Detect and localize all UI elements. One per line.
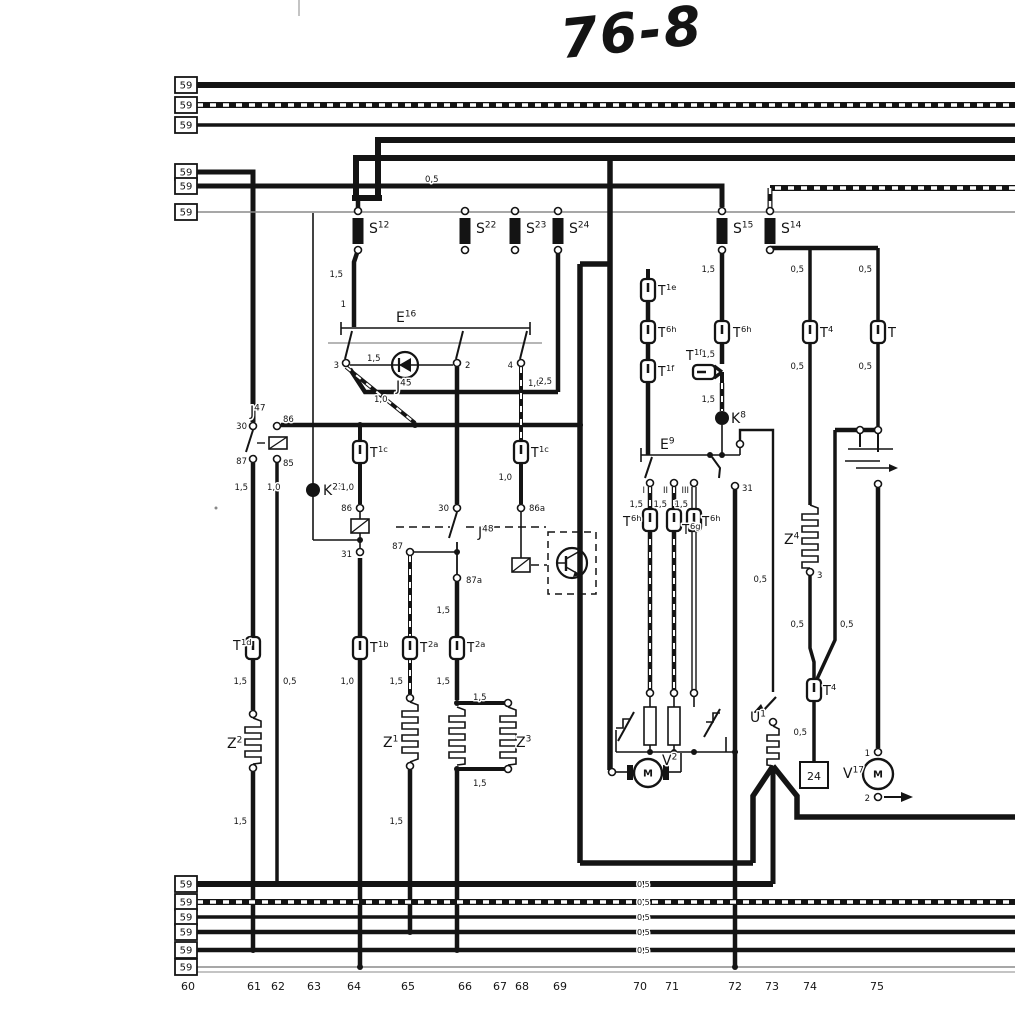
switch-arrow [889,464,898,472]
track-59-label: 59 [180,168,193,179]
label-T4: T4 [819,324,833,341]
terminal-circle [518,505,525,512]
terminal-circle [737,441,744,448]
label-2,5: 2,5 [538,377,552,387]
label-87a: 87a [466,576,482,586]
label-1,5: 1,5 [473,779,487,789]
ground-arrow [901,792,913,802]
terminal-circle [647,480,654,487]
label-T6g: T6g [681,521,701,538]
grid-coordinate-69: 69 [553,980,567,993]
wire-segment [704,709,720,737]
label-1,5: 1,5 [389,677,403,687]
label-0,5: 0,5 [790,362,804,372]
label-1: 1 [865,749,870,759]
grid-coordinate-71: 71 [665,980,679,993]
track-59-label: 59 [180,81,193,92]
wire-segment [817,430,835,679]
wire-segment [246,430,253,452]
grid-coordinate-60: 60 [181,980,195,993]
label-T1b: T1b [369,639,389,656]
junction-dot [691,749,697,755]
label-T2a: T2a [419,639,438,656]
label-T6h: T6h [701,513,721,530]
label-K8: K8 [731,411,746,427]
label-87: 87 [236,457,247,467]
terminal-circle [555,247,562,254]
wire-segment [618,712,634,741]
terminal-circle [357,549,364,556]
wire-segment [197,172,253,422]
terminal-circle [719,247,726,254]
terminal-circle [875,427,882,434]
wiring-diagram-svg: MMS12S22S23S24S15S14E16J45J47J48K23K8E9Z… [0,0,1024,1024]
label-1,5: 1,5 [674,500,688,510]
terminal-circle [454,575,461,582]
terminal-circle [770,719,777,726]
terminal-circle [355,208,362,215]
junction-dot [250,947,256,953]
label-31: 31 [742,484,753,494]
terminal-circle [505,700,512,707]
label-0,5: 0,5 [793,728,807,738]
label-30: 30 [236,422,247,432]
wire-segment [354,250,358,327]
fuse-body [717,218,728,244]
wire-segment [645,457,652,478]
label-86: 86 [341,504,352,514]
label-2: 2 [865,794,870,804]
grid-coordinate-74: 74 [803,980,817,993]
junction-dot [407,929,413,935]
fuse-body [510,218,521,244]
handwritten-page-number: 76-8 [557,0,706,71]
wire-segment [810,576,814,679]
junction-dot [647,749,653,755]
label-1,5: 1,5 [329,270,343,280]
junction-dot [454,947,460,953]
resistor-Z2 [245,718,261,764]
resistor-Z1 [402,702,418,762]
terminal-circle [691,690,698,697]
label-V2: V2 [662,753,677,769]
junction-dot [274,881,280,887]
track-59-label: 59 [180,913,193,924]
label-J48: J48 [477,525,494,541]
warning-lamp-K8 [715,411,729,425]
track-59-label: 59 [180,946,193,957]
wire-segment [740,430,773,692]
motor-label: M [873,770,883,781]
wire-segment [350,369,558,392]
label-T: T [887,326,896,341]
label-0,5: 0,5 [840,620,854,630]
junction-dot [454,700,460,706]
label-S22: S22 [476,221,496,237]
label-T4: T4 [822,682,836,699]
label-1,5: 1,5 [653,500,667,510]
terminal-circle [250,711,257,718]
label-24: 24 [807,770,821,783]
label-1,5: 1,5 [629,500,643,510]
label-31: 31 [341,550,352,560]
grid-coordinate-70: 70 [633,980,647,993]
terminal-circle [505,766,512,773]
label-S12: S12 [369,221,389,237]
label-Z1: Z1 [383,735,398,751]
terminal-circle [875,794,882,801]
label-1,5: 1,5 [367,354,381,364]
track-59-label: 59 [180,182,193,193]
terminal-circle [807,569,814,576]
label-86a: 86a [529,504,545,514]
label-S14: S14 [781,221,802,237]
label-1,5: 1,5 [233,677,247,687]
junction-dot [454,549,460,555]
terminal-circle [462,208,469,215]
fuse-body [765,218,776,244]
terminal-circle [671,480,678,487]
label-0,5: 0,5 [753,575,767,585]
label-1,5: 1,5 [436,606,450,616]
label-I: I [642,486,645,496]
terminal-circle [250,456,257,463]
scan-speck [215,507,218,510]
track-59-label: 59 [180,101,193,112]
track-59-label: 59 [180,880,193,891]
component-box [644,707,656,745]
label-T1e: T1e [657,282,676,299]
junction-dot [357,422,363,428]
grid-coordinate-75: 75 [870,980,884,993]
wire-segment [456,331,463,359]
terminal-circle [343,360,350,367]
terminal-circle [407,763,414,770]
label-1,0: 1,0 [498,473,512,483]
label-1,5: 1,5 [389,817,403,827]
label-0,5: 0,5 [283,677,297,687]
label-1,5: 1,5 [234,483,248,493]
terminal-circle [518,360,525,367]
terminal-circle [875,749,882,756]
label-T1c: T1c [369,444,388,461]
label-1: 1 [341,300,346,310]
label-0,5: 0,5 [858,362,872,372]
label-1,0: 1,0 [267,483,281,493]
label-E16: E16 [396,310,417,326]
label-1,5: 1,5 [473,693,487,703]
label-3: 3 [334,361,339,371]
label-3: 3 [817,571,822,581]
label-T2a: T2a [466,639,485,656]
label-Z2: Z2 [227,736,242,752]
label-S15: S15 [733,221,753,237]
label-0,5: 0,5 [790,620,804,630]
label-II: II [663,486,668,496]
junction-dot [412,422,418,428]
terminal-circle [767,208,774,215]
label-30: 30 [438,504,449,514]
label-0,5: 0,5 [425,175,439,185]
relay-housing-outline [548,532,596,594]
label-Z4: Z4 [784,532,800,548]
label-S23: S23 [526,221,546,237]
label-0,5: 0,5 [637,880,650,889]
label-III: III [681,486,689,496]
label-0,5: 0,5 [790,265,804,275]
terminal-circle [250,765,257,772]
track-59-label: 59 [180,898,193,909]
grid-coordinate-63: 63 [307,980,321,993]
label-1,5: 1,5 [233,817,247,827]
wire-segment [520,331,527,359]
terminal-circle [512,208,519,215]
label-0,5: 0,5 [637,946,650,955]
grid-coordinate-62: 62 [271,980,285,993]
label-T6h: T6h [732,324,752,341]
label-85: 85 [283,459,294,469]
label-0,5: 0,5 [637,898,650,907]
label-0,5: 0,5 [637,928,650,937]
grid-coordinate-61: 61 [247,980,261,993]
label-0,5: 0,5 [637,913,650,922]
terminal-circle [719,208,726,215]
wire-segment [753,766,773,863]
label-J47: J47 [249,404,266,420]
wire-segment [356,158,1015,198]
fuse-body [553,218,564,244]
terminal-circle [407,549,414,556]
track-59-label: 59 [180,121,193,132]
warning-lamp-K23 [306,483,320,497]
terminal-circle [462,247,469,254]
label-86: 86 [283,415,294,425]
terminal-circle [250,423,257,430]
grid-coordinate-65: 65 [401,980,415,993]
label-V17: V17 [843,766,864,782]
terminal-circle [647,690,654,697]
resistor-Z4 [802,505,818,568]
label-1,0: 1,0 [340,677,354,687]
wire-segment [449,512,457,538]
grid-coordinate-72: 72 [728,980,742,993]
terminal-circle [274,423,281,430]
terminal-circle [555,208,562,215]
label-4: 4 [508,361,513,371]
terminal-circle [691,480,698,487]
label-87: 87 [392,542,403,552]
track-59-label: 59 [180,208,193,219]
terminal-circle [357,505,364,512]
label-Z3: Z3 [516,735,531,751]
junction-dot [357,537,363,543]
terminal-circle [732,483,739,490]
label-1,0: 1,0 [374,395,388,405]
terminal-circle [274,456,281,463]
track-59-label: 59 [180,963,193,974]
terminal-circle [609,769,616,776]
junction-dot [357,964,363,970]
junction-dot [577,422,583,428]
label-U1: U1 [750,710,766,726]
diode-arrow [399,358,411,372]
terminal-circle [454,360,461,367]
motor-label: M [643,769,653,780]
terminal-circle [875,481,882,488]
label-1,5: 1,5 [436,677,450,687]
label-T1f: T1f [657,363,675,380]
resistor-Z3-right [500,707,516,765]
label-S24: S24 [569,221,590,237]
label-E9: E9 [660,437,675,453]
label-T6h: T6h [657,324,677,341]
motor-brush [627,765,633,780]
label-0,5: 0,5 [858,265,872,275]
junction-dot [732,749,738,755]
junction-dot [732,964,738,970]
terminal-circle [454,505,461,512]
terminal-circle [671,690,678,697]
wire-segment [345,331,352,359]
grid-coordinate-66: 66 [458,980,472,993]
terminal-circle [355,247,362,254]
grid-coordinate-64: 64 [347,980,361,993]
heating-element-U1 [767,726,779,766]
terminal-circle [857,427,864,434]
fuse-body [353,218,364,244]
label-T1c: T1c [530,444,549,461]
grid-coordinate-67: 67 [493,980,507,993]
label-1,5: 1,5 [701,350,715,360]
resistor-Z3-left [449,707,465,765]
terminal-circle [407,695,414,702]
label-1,5: 1,5 [701,265,715,275]
wiring-diagram-page: MMS12S22S23S24S15S14E16J45J47J48K23K8E9Z… [0,0,1024,1024]
wire-segment [712,457,720,478]
grid-coordinate-68: 68 [515,980,529,993]
junction-dot [707,452,713,458]
terminal-circle [512,247,519,254]
label-2: 2 [465,361,470,371]
label-T6h: T6h [622,513,642,530]
terminal-circle [767,247,774,254]
label-1,0: 1,0 [340,483,354,493]
wire-segment [197,186,722,207]
junction-dot [719,452,725,458]
grid-coordinate-73: 73 [765,980,779,993]
fuse-body [460,218,471,244]
track-59-label: 59 [180,928,193,939]
junction-dot [454,766,460,772]
label-1,5: 1,5 [701,395,715,405]
component-box [668,707,680,745]
